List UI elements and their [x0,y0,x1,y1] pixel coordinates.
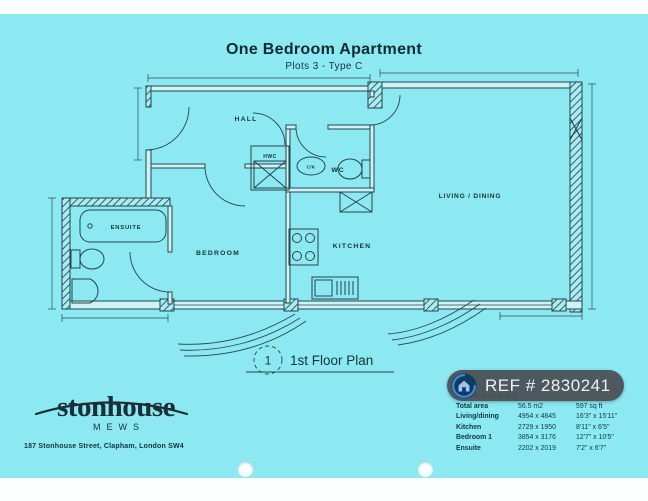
hole-punch [238,462,253,477]
dim-imperial: 7'2" x 6'7" [576,445,638,452]
ensuite-toilet-icon [71,249,104,269]
dim-imperial: 16'3" x 15'11" [576,413,638,420]
dim-imperial: 597 sq ft [576,403,638,410]
agency-tagline: MEWS [28,422,204,432]
dimension-lines [48,69,596,322]
dim-metric: 2729 x 1950 [518,424,576,431]
windows [174,118,582,305]
room-label-hall: HALL [235,116,258,123]
agency-name: stonhouse [28,392,204,422]
basin-icon [72,279,98,303]
dim-metric: 2202 x 2019 [518,445,576,452]
table-row: Living/dining 4954 x 4845 16'3" x 15'11" [456,413,638,420]
room-label-bedroom: BEDROOM [196,250,240,257]
bedroom-door-arc [205,166,245,206]
dim-name: Total area [456,403,518,410]
room-label-hwc: HWC [263,154,276,160]
floor-number: 1 [265,354,272,368]
hall-cupboard-door-arc [253,113,285,145]
table-row: Ensuite 2202 x 2019 7'2" x 6'7" [456,445,638,452]
agency-address: 187 Stonhouse Street, Clapham, London SW… [24,443,184,450]
table-row: Kitchen 2729 x 1950 8'11" x 6'5" [456,424,638,431]
tap-icon [88,224,92,228]
floor-plan-label: 1st Floor Plan [290,353,373,368]
ensuite-door-arc [130,252,170,292]
entrance-door-arc [146,107,189,150]
room-label-living-dining: LIVING / DINING [439,193,502,200]
scanned-floorplan-page: One Bedroom Apartment Plots 3 - Type C [0,0,648,501]
kitchen-unit [340,192,372,212]
table-row: Total area 56.5 m2 597 sq ft [456,403,638,410]
room-label-ck: C/K [307,165,316,170]
ref-number-text: REF # 2830241 [485,376,611,396]
wc-door-arc [296,127,326,157]
house-icon [451,373,477,399]
ref-badge: REF # 2830241 [447,370,624,401]
floor-marker: 1 1st Floor Plan [246,346,394,374]
dim-name: Ensuite [456,445,518,452]
room-label-kitchen: KITCHEN [333,243,372,250]
room-label-wc: WC [331,167,344,174]
hob-icon [289,229,318,265]
room-label-ensuite: ENSUITE [111,225,142,231]
sink-icon [312,277,358,299]
dim-imperial: 8'11" x 6'5" [576,424,638,431]
dim-imperial: 12'7" x 10'5" [576,434,638,441]
dim-metric: 56.5 m2 [518,403,576,410]
dim-metric: 4954 x 4845 [518,413,576,420]
dim-name: Living/dining [456,413,518,420]
dim-name: Kitchen [456,424,518,431]
dim-metric: 3854 x 3176 [518,434,576,441]
dim-name: Bedroom 1 [456,434,518,441]
table-row: Bedroom 1 3854 x 3176 12'7" x 10'5" [456,434,638,441]
hole-punch [418,462,433,477]
agency-logo: stonhouse MEWS [28,392,204,432]
